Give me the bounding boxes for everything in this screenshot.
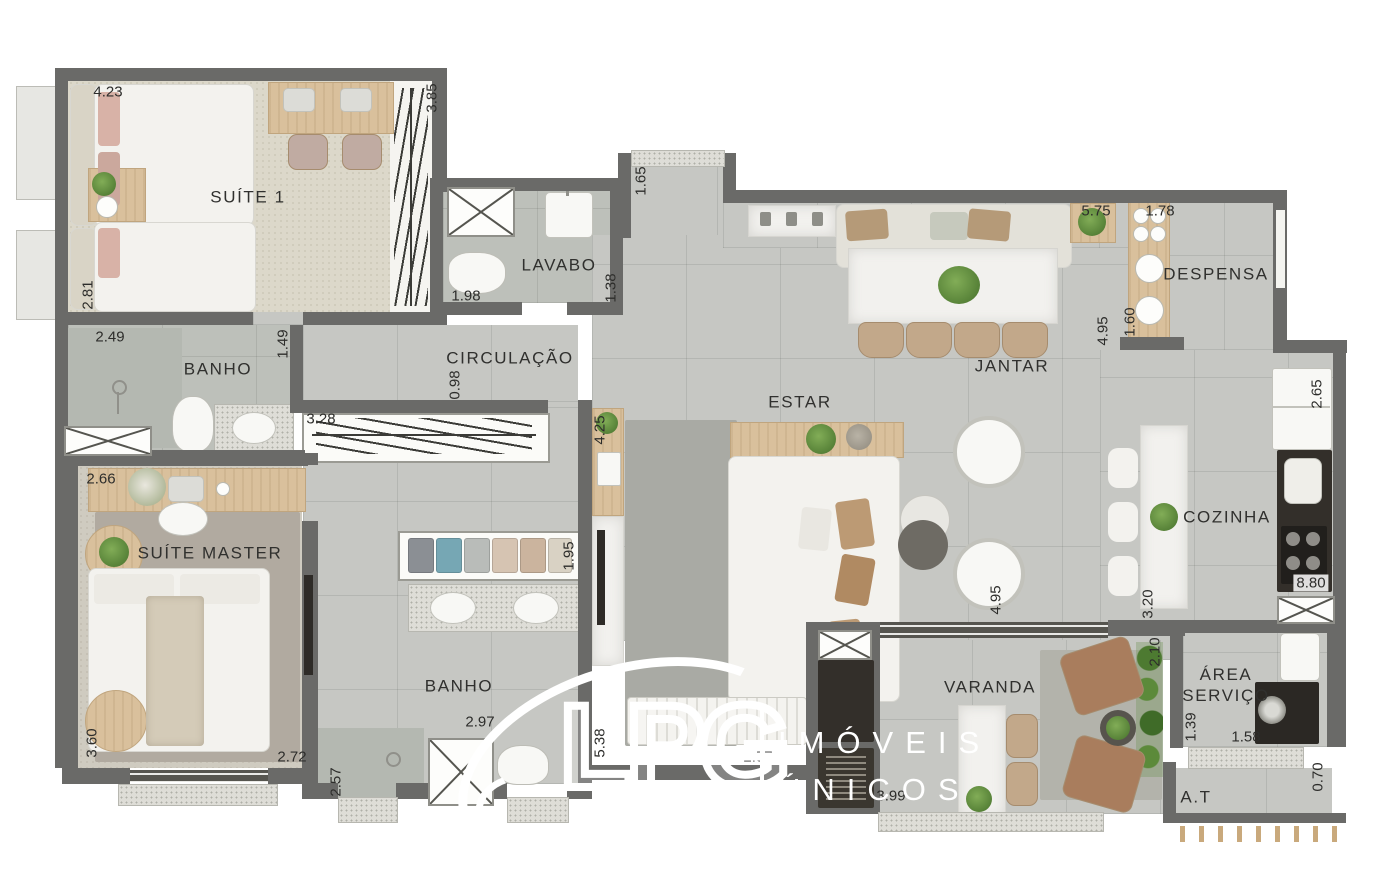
burner — [1286, 532, 1300, 546]
jantar-chair — [954, 322, 1000, 358]
wall — [618, 153, 631, 238]
varanda-table-plant — [1106, 716, 1130, 740]
shaft-box — [818, 630, 872, 660]
room-label-banho: BANHO — [184, 358, 252, 379]
jantar-centerpiece — [938, 266, 980, 304]
estar-coffee-table-dark — [898, 520, 948, 570]
master-window — [130, 770, 268, 782]
burner — [1306, 532, 1320, 546]
dimension-label-2-81-2: 2.81 — [80, 280, 97, 309]
suite1-desk-chair — [342, 134, 382, 170]
dimension-label-3-85-1: 3.85 — [424, 83, 441, 112]
dimension-label-1-58-30: 1.58 — [1231, 729, 1260, 746]
wall — [430, 190, 443, 315]
burner — [1286, 556, 1300, 570]
console-plant — [846, 424, 872, 450]
room-label-jantar: JANTAR — [975, 355, 1049, 376]
wall — [1333, 350, 1346, 610]
shower-head-icon — [386, 752, 401, 767]
suite1-plant — [92, 172, 116, 196]
jantar-chair — [1002, 322, 1048, 358]
bench-cushion — [930, 212, 968, 240]
banho2-sink — [513, 592, 559, 624]
bench-cushion — [845, 209, 889, 242]
dimension-label-4-95-20: 4.95 — [1095, 316, 1112, 345]
dimension-label-4-95-24: 4.95 — [988, 585, 1005, 614]
room-label-varanda: VARANDA — [944, 676, 1036, 697]
banho2-window-sill — [338, 797, 398, 823]
wall — [578, 400, 592, 783]
dimension-label-1-60-22: 1.60 — [1122, 307, 1139, 336]
dimension-label-0-70-31: 0.70 — [1310, 762, 1327, 791]
island-stool — [1108, 502, 1138, 542]
room-label-rea-servi-o: ÁREA SERVIÇO — [1182, 664, 1269, 707]
entry-threshold — [631, 150, 725, 167]
dimension-label-5-38-17: 5.38 — [592, 728, 609, 757]
dimension-label-5-75-19: 5.75 — [1081, 203, 1110, 220]
dish — [1150, 226, 1166, 242]
wall — [303, 312, 447, 325]
wall — [268, 768, 314, 784]
master-laptop — [168, 476, 204, 502]
dish-large — [1135, 254, 1164, 283]
towel — [492, 538, 518, 573]
dimension-label-1-39-29: 1.39 — [1183, 712, 1200, 741]
room-label-su-te-master: SUÍTE MASTER — [138, 542, 283, 563]
suite1-desk-chair — [288, 134, 328, 170]
console-decor — [786, 212, 797, 226]
kitchen-sink — [1284, 458, 1322, 504]
master-desk-chair — [158, 502, 208, 536]
shower-stem — [117, 392, 119, 414]
suite1-tray — [96, 196, 118, 218]
master-desk-cup — [216, 482, 230, 496]
room-label-su-te-1: SUÍTE 1 — [210, 186, 285, 207]
lavabo-sink — [545, 192, 593, 238]
floor-plan: LPG IMÓVEIS ÚNICOS SUÍTE 1LAVABOCIRCULAÇ… — [0, 0, 1400, 886]
suite1-laptop — [340, 88, 372, 112]
dish — [1133, 226, 1149, 242]
towel — [436, 538, 462, 573]
wall — [55, 68, 68, 463]
suite1-laptop — [283, 88, 315, 112]
varanda-sill — [878, 812, 1104, 832]
dimension-label-4-25-10: 4.25 — [592, 415, 609, 444]
wall — [1183, 620, 1277, 633]
suite1-bed2-pillow — [98, 228, 120, 278]
island-stool — [1108, 448, 1138, 488]
wall — [1163, 813, 1346, 823]
dimension-label-3-20-25: 3.20 — [1140, 589, 1157, 618]
shower-head-icon — [112, 380, 127, 395]
towel — [520, 538, 546, 573]
dish-large — [1135, 296, 1164, 325]
despensa-window — [1276, 210, 1285, 288]
dimension-label-0-98-8: 0.98 — [447, 370, 464, 399]
suite1-door-gap — [253, 312, 303, 325]
jantar-chair — [906, 322, 952, 358]
wall — [1170, 620, 1183, 748]
room-label-despensa: DESPENSA — [1163, 263, 1268, 284]
estar-varanda-sliding-door — [880, 622, 1108, 638]
varanda-gourmet-counter — [818, 660, 874, 742]
island-plant — [1150, 503, 1178, 531]
wall — [567, 783, 592, 799]
master-bed-throw — [146, 596, 204, 746]
area-servico-sill — [1188, 747, 1304, 769]
room-label-cozinha: COZINHA — [1183, 506, 1271, 527]
wall — [55, 463, 78, 768]
dimension-label-3-99-28: 3.99 — [876, 788, 905, 805]
banho2-sink — [430, 592, 476, 624]
room-label-banho: BANHO — [425, 675, 493, 696]
banho1-toilet — [172, 396, 214, 452]
banho2-toilet — [497, 745, 549, 785]
room-label-circula-o: CIRCULAÇÃO — [446, 347, 573, 368]
bench-cushion — [967, 208, 1011, 242]
master-window-sill — [118, 784, 278, 806]
dimension-label-2-49-3: 2.49 — [95, 329, 124, 346]
burner — [1306, 556, 1320, 570]
console-decor — [812, 212, 823, 226]
console-decor — [760, 212, 771, 226]
dimension-label-1-65-7: 1.65 — [633, 166, 650, 195]
exterior-ledge — [16, 230, 58, 320]
dimension-label-4-23-0: 4.23 — [93, 84, 122, 101]
room-label-estar: ESTAR — [768, 391, 831, 412]
towel — [408, 538, 434, 573]
room-label-a-t: A.T — [1180, 786, 1211, 807]
sofa-cushion — [798, 507, 832, 552]
banho1-sink — [232, 412, 276, 444]
dimension-label-2-57-15: 2.57 — [328, 767, 345, 796]
dimension-label-1-38-6: 1.38 — [603, 273, 620, 302]
banho2-window-sill — [507, 797, 569, 823]
dimension-label-8-80-26: 8.80 — [1293, 575, 1328, 592]
dimension-label-3-28-9: 3.28 — [306, 411, 335, 428]
dimension-label-1-49-4: 1.49 — [275, 329, 292, 358]
estar-tv — [597, 530, 605, 625]
grill-grate — [826, 756, 866, 800]
master-desk-flowers — [128, 468, 166, 506]
varanda-chair — [1006, 762, 1038, 806]
master-side-plant — [99, 537, 129, 567]
island-stool — [1108, 556, 1138, 596]
dimension-label-3-60-13: 3.60 — [84, 728, 101, 757]
dimension-label-2-72-14: 2.72 — [277, 749, 306, 766]
wall — [592, 765, 814, 780]
dimension-label-1-95-12: 1.95 — [561, 541, 578, 570]
dimension-label-2-66-11: 2.66 — [86, 471, 115, 488]
console-plant — [806, 424, 836, 454]
dimension-label-1-98-5: 1.98 — [451, 288, 480, 305]
estar-sideboard-books — [597, 452, 621, 486]
window-sill-x — [64, 426, 152, 456]
dimension-label-2-10-27: 2.10 — [1147, 637, 1164, 666]
wall — [302, 453, 318, 465]
kitchen-window-x — [1277, 596, 1335, 624]
estar-armchair — [953, 416, 1025, 488]
estar-daybed-bench — [627, 697, 807, 745]
sofa-cushion — [835, 498, 875, 550]
varanda-plant — [966, 786, 992, 812]
varanda-chair — [1006, 714, 1038, 758]
dimension-label-1-78-21: 1.78 — [1145, 203, 1174, 220]
jantar-chair — [858, 322, 904, 358]
laundry-tank — [1280, 633, 1320, 681]
exterior-ledge — [16, 86, 58, 200]
at-ticks — [1180, 826, 1346, 842]
corridor-closet-hangers — [316, 418, 532, 454]
dimension-label-2-65-23: 2.65 — [1309, 379, 1326, 408]
wall — [55, 312, 253, 325]
towel — [464, 538, 490, 573]
shaft-box — [428, 738, 494, 806]
suite1-closet-rail — [410, 88, 412, 306]
wall — [1120, 337, 1184, 350]
corridor-closet-rail — [312, 434, 536, 436]
dimension-label-2-97-16: 2.97 — [465, 714, 494, 731]
wall — [723, 190, 1287, 203]
wall — [55, 68, 447, 81]
shaft-box — [447, 187, 515, 237]
wall — [290, 325, 303, 412]
master-tv-panel — [304, 575, 313, 675]
room-label-lavabo: LAVABO — [521, 254, 596, 275]
wall — [62, 768, 130, 784]
dimension-label-2-57-18: 2.57 — [743, 749, 772, 766]
